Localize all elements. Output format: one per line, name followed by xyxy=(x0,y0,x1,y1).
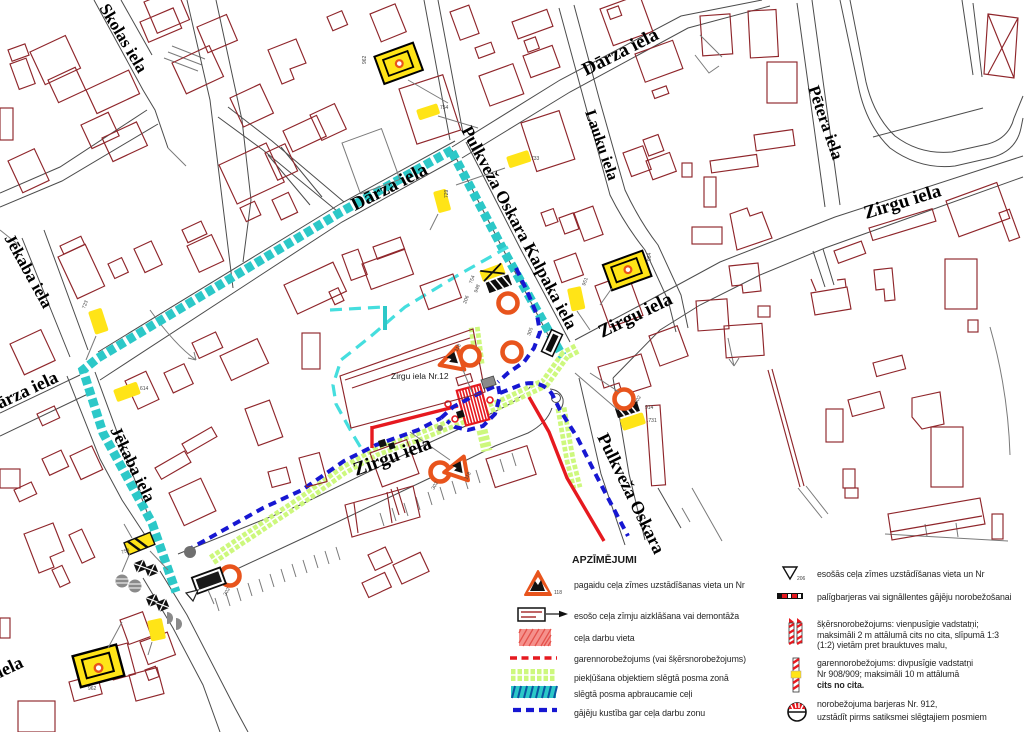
svg-text:962: 962 xyxy=(88,686,97,692)
svg-text:ceļa darbu vieta: ceļa darbu vieta xyxy=(574,633,635,643)
svg-text:Nr 908/909; maksimāli 10 m at: Nr 908/909; maksimāli 10 m attālumā xyxy=(817,669,959,679)
svg-text:754: 754 xyxy=(440,105,449,111)
svg-text:esošās ceļa zīmes uzstādīšanas: esošās ceļa zīmes uzstādīšanas vieta un … xyxy=(817,569,985,579)
svg-text:maksimāli 2 m attālumā cits no: maksimāli 2 m attālumā cits no cita, slī… xyxy=(817,630,999,640)
svg-text:garennorobežojums: divpusīgie: garennorobežojums: divpusīgie vadstatņi xyxy=(817,658,973,668)
svg-text:614: 614 xyxy=(140,386,149,392)
svg-text:118: 118 xyxy=(554,590,562,596)
svg-text:palīgbarjeras vai signāllentes: palīgbarjeras vai signāllentes gājēju no… xyxy=(817,592,1012,602)
svg-text:206: 206 xyxy=(797,576,806,582)
svg-text:slēgtā posma apbraucamie ceļi: slēgtā posma apbraucamie ceļi xyxy=(574,689,693,699)
svg-text:914: 914 xyxy=(645,405,654,411)
svg-text:esošo ceļa zīmju aizklāšana va: esošo ceļa zīmju aizklāšana vai demontāž… xyxy=(574,611,739,621)
svg-text:Zirgu iela Nr.12: Zirgu iela Nr.12 xyxy=(391,371,449,381)
svg-text:cits no cita.: cits no cita. xyxy=(817,680,864,690)
svg-text:APZĪMĒJUMI: APZĪMĒJUMI xyxy=(572,554,637,566)
svg-text:(1:2) vietām pret brauktuves m: (1:2) vietām pret brauktuves malu, xyxy=(817,640,947,650)
svg-text:729: 729 xyxy=(444,189,450,198)
svg-text:gājēju kustība gar ceļa darbu: gājēju kustība gar ceļa darbu zonu xyxy=(574,708,705,718)
svg-text:962: 962 xyxy=(362,55,368,64)
svg-text:733: 733 xyxy=(531,156,540,162)
svg-text:norobežojuma barjeras Nr. 912,: norobežojuma barjeras Nr. 912, xyxy=(817,699,937,709)
svg-text:piekļūšana objektiem slēgtā po: piekļūšana objektiem slēgtā posma zonā xyxy=(574,673,729,683)
svg-text:.731: .731 xyxy=(647,418,657,424)
svg-text:pagaidu ceļa zīmes uzstādīšana: pagaidu ceļa zīmes uzstādīšanas vieta un… xyxy=(574,580,745,590)
svg-text:uzstādīt pirms satiksmei slēgt: uzstādīt pirms satiksmei slēgtajiem posm… xyxy=(817,712,987,722)
svg-text:šķērsnorobežojums: vienpusīgie: šķērsnorobežojums: vienpusīgie vadstatņi… xyxy=(817,619,979,629)
svg-text:garennorobežojums (vai šķērsno: garennorobežojums (vai šķērsnorobežojums… xyxy=(574,654,746,664)
svg-text:964: 964 xyxy=(647,252,653,261)
